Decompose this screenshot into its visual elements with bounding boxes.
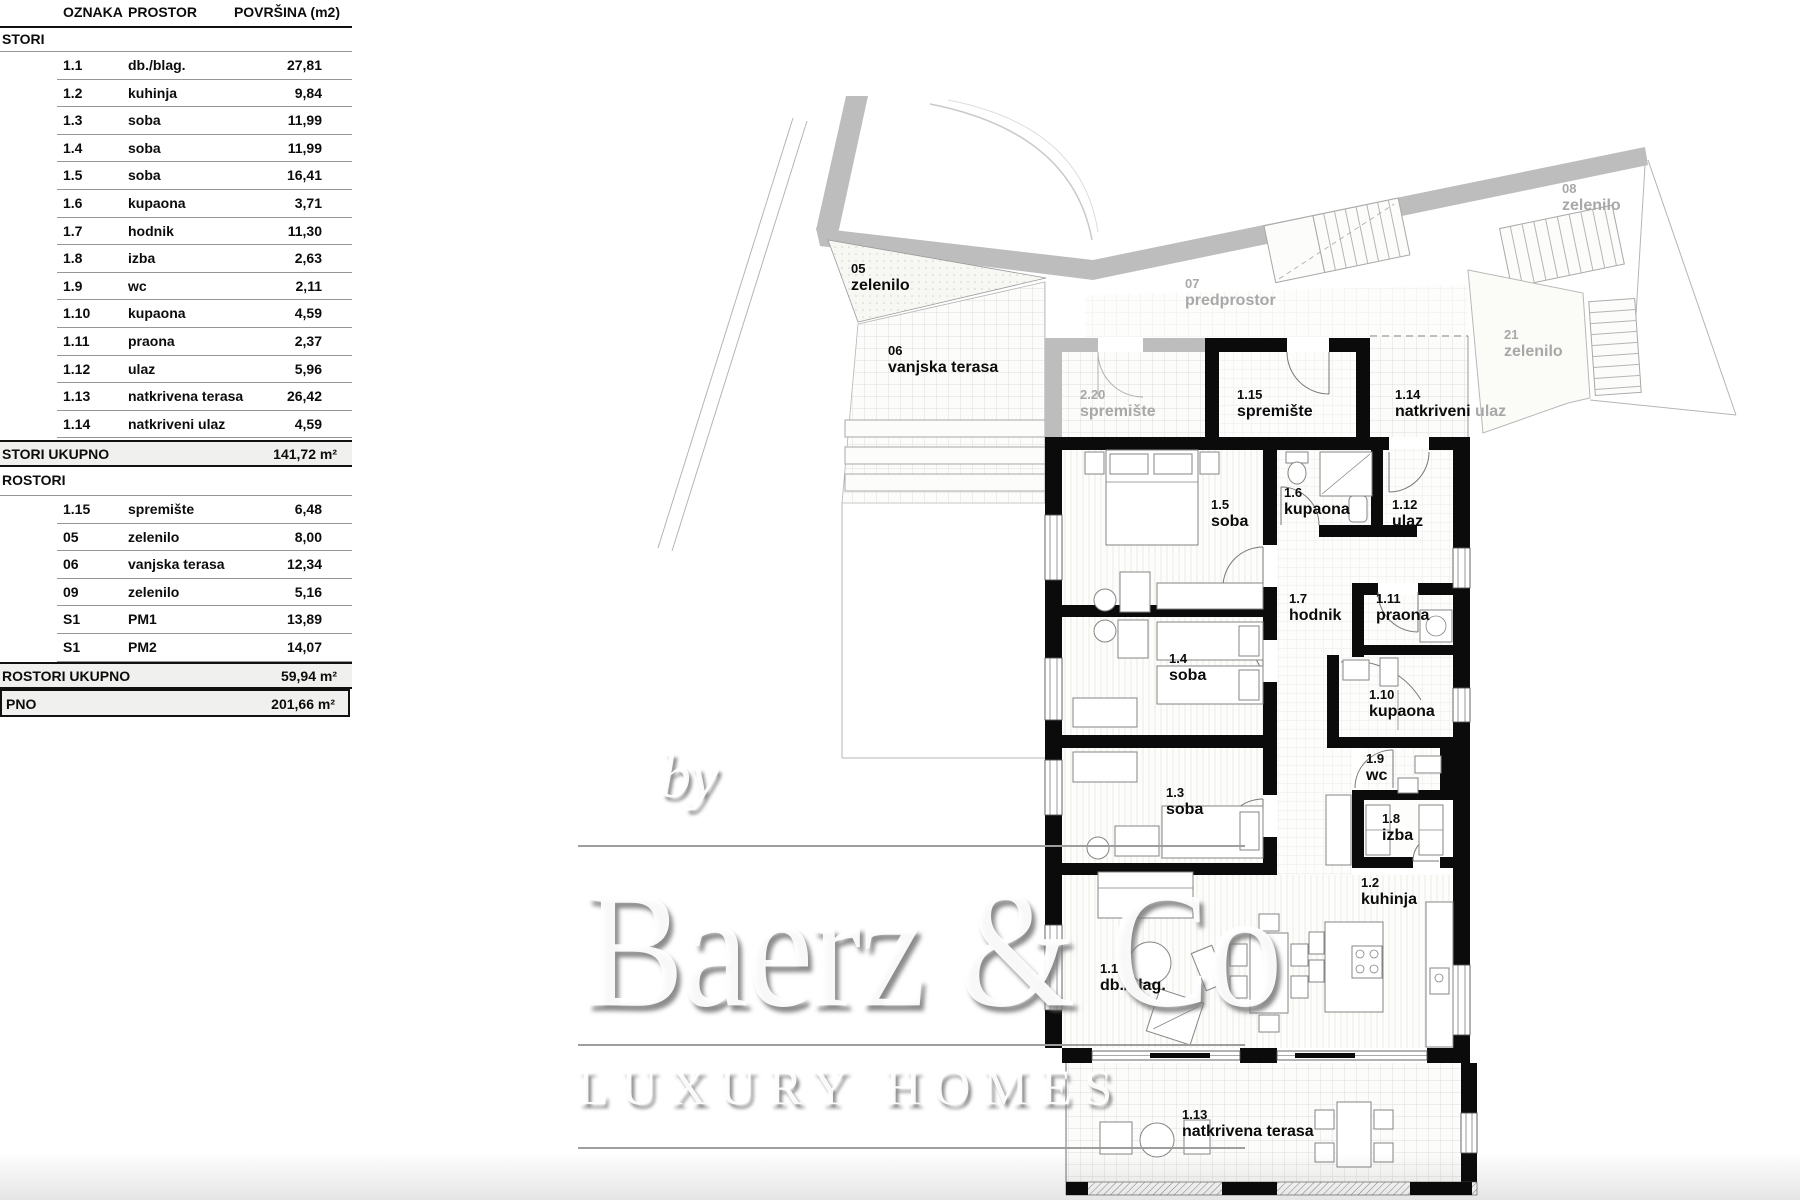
plan-label-name: natkrivena terasa: [1182, 1123, 1314, 1141]
plan-label-06: 06vanjska terasa: [888, 344, 998, 376]
plan-label-1-3: 1.3soba: [1166, 786, 1203, 818]
terrace-edge: [1066, 1182, 1477, 1195]
plan-label-name: wc: [1366, 767, 1387, 785]
plan-label-code: 06: [888, 344, 998, 359]
plan-label-1-12: 1.12ulaz: [1392, 498, 1423, 530]
plan-label-1-8: 1.8izba: [1382, 812, 1413, 844]
plan-label-name-suffix: ulaz: [1471, 403, 1507, 420]
plan-label-code: 2.20: [1080, 388, 1156, 403]
plan-label-code: 1.7: [1289, 592, 1341, 607]
plan-label-05: 05zelenilo: [851, 262, 910, 294]
plan-label-name: soba: [1166, 801, 1203, 819]
plan-label-1-5: 1.5soba: [1211, 498, 1248, 530]
plan-label-code: 1.2: [1361, 876, 1417, 891]
plan-label-code: 1.15: [1237, 388, 1313, 403]
plan-label-2-20: 2.20spremište: [1080, 388, 1156, 420]
plan-label-code: 1.9: [1366, 752, 1387, 767]
plan-label-1-13: 1.13natkrivena terasa: [1182, 1108, 1314, 1140]
plan-label-1-14: 1.14natkriveni ulaz: [1395, 388, 1506, 420]
plan-label-1-15: 1.15spremište: [1237, 388, 1313, 420]
plan-label-code: 1.14: [1395, 388, 1506, 403]
plan-label-name: soba: [1211, 513, 1248, 531]
plan-label-08: 08zelenilo: [1562, 182, 1621, 214]
plan-label-07: 07predprostor: [1185, 277, 1276, 309]
plan-label-name: kupaona: [1369, 703, 1435, 721]
plan-label-name: zelenilo: [851, 277, 910, 295]
plan-label-1-11: 1.11praona: [1376, 592, 1429, 624]
plan-label-code: 1.8: [1382, 812, 1413, 827]
floor-plan-drawing: [0, 0, 1800, 1200]
plan-label-name: ulaz: [1392, 513, 1423, 531]
plan-label-1-9: 1.9wc: [1366, 752, 1387, 784]
plan-label-code: 1.12: [1392, 498, 1423, 513]
plan-label-code: 1.6: [1284, 486, 1350, 501]
plan-label-name: zelenilo: [1562, 197, 1621, 215]
plan-label-code: 1.11: [1376, 592, 1429, 607]
plan-label-name: hodnik: [1289, 607, 1341, 625]
plan-label-name: predprostor: [1185, 292, 1276, 310]
plan-label-code: 1.1: [1100, 962, 1166, 977]
plan-label-name: kuhinja: [1361, 891, 1417, 909]
plan-label-1-4: 1.4soba: [1169, 652, 1206, 684]
floor-plan-page: { "table": { "headers": ["OZNAKA", "PROS…: [0, 0, 1800, 1200]
plan-label-1-10: 1.10kupaona: [1369, 688, 1435, 720]
plan-label-1-7: 1.7hodnik: [1289, 592, 1341, 624]
site-stairs-right: [1500, 205, 1625, 287]
site-stairs-21: [1589, 299, 1641, 396]
site-stairs-upper: [1264, 198, 1410, 283]
plan-label-1-6: 1.6kupaona: [1284, 486, 1350, 518]
plan-label-code: 1.13: [1182, 1108, 1314, 1123]
plan-label-name: kupaona: [1284, 501, 1350, 519]
plan-label-code: 08: [1562, 182, 1621, 197]
plan-label-name: db./blag.: [1100, 977, 1166, 995]
plan-label-21: 21zelenilo: [1504, 328, 1563, 360]
plan-label-code: 1.3: [1166, 786, 1203, 801]
plan-label-name: spremište: [1080, 403, 1156, 421]
plan-label-name: zelenilo: [1504, 343, 1563, 361]
plan-label-code: 1.5: [1211, 498, 1248, 513]
plan-label-name: spremište: [1237, 403, 1313, 421]
plan-label-name: praona: [1376, 607, 1429, 625]
plan-label-code: 21: [1504, 328, 1563, 343]
plan-label-code: 1.4: [1169, 652, 1206, 667]
plan-label-name: izba: [1382, 827, 1413, 845]
plan-label-code: 1.10: [1369, 688, 1435, 703]
plan-label-name: soba: [1169, 667, 1206, 685]
plan-label-1-2: 1.2kuhinja: [1361, 876, 1417, 908]
plan-label-code: 05: [851, 262, 910, 277]
plan-label-name: vanjska terasa: [888, 359, 998, 377]
plan-label-code: 07: [1185, 277, 1276, 292]
plan-label-name: natkriveni ulaz: [1395, 403, 1506, 421]
plan-label-1-1: 1.1db./blag.: [1100, 962, 1166, 994]
